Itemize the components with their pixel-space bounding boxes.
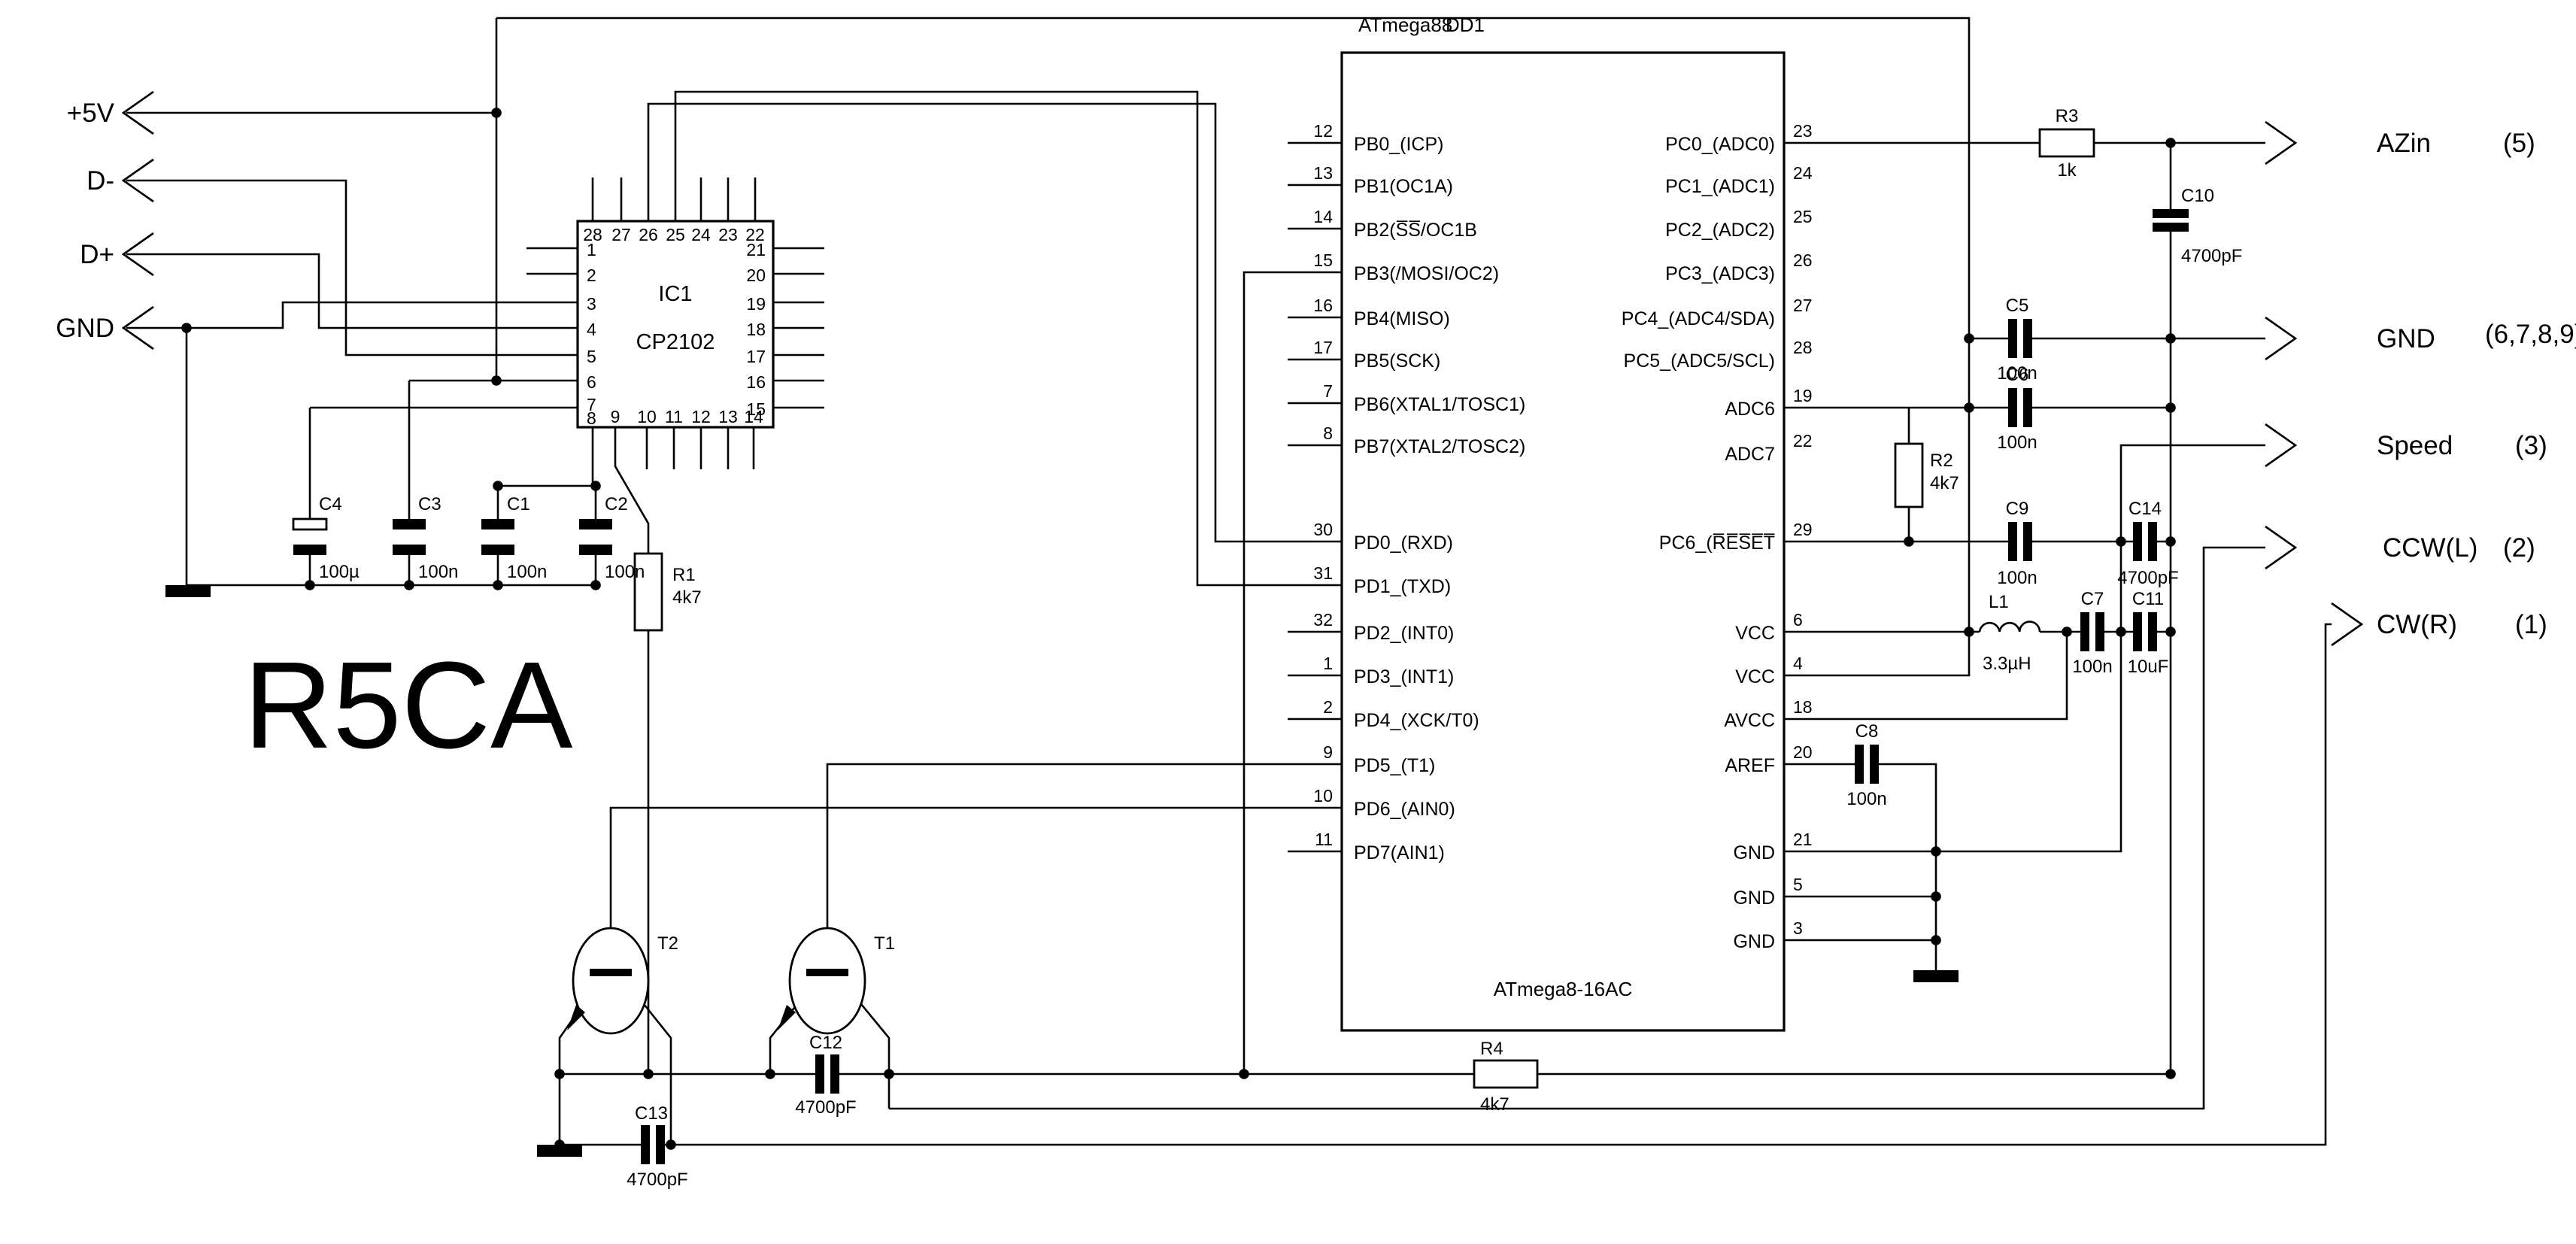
svg-text:12: 12 bbox=[1313, 121, 1333, 141]
mcu-right-pin-numbers: 23 24 25 26 27 28 19 22 29 6 4 18 20 21 … bbox=[1793, 121, 1813, 938]
junction-dots bbox=[181, 108, 2176, 1150]
cap-c8-plate1 bbox=[1855, 745, 1864, 784]
svg-text:21: 21 bbox=[1793, 830, 1813, 849]
inductor-l1 bbox=[1980, 622, 2040, 632]
svg-text:C8: C8 bbox=[1855, 721, 1879, 742]
svg-text:23: 23 bbox=[1793, 121, 1813, 141]
svg-text:19: 19 bbox=[746, 294, 766, 314]
arrow-out-gnd bbox=[2265, 317, 2295, 360]
svg-text:PD6_(AIN0): PD6_(AIN0) bbox=[1354, 799, 1455, 820]
svg-text:22: 22 bbox=[1793, 431, 1813, 451]
svg-text:PC3_(ADC3): PC3_(ADC3) bbox=[1665, 263, 1775, 284]
svg-text:C13: C13 bbox=[635, 1103, 668, 1124]
transistor-t2 bbox=[567, 928, 648, 1033]
svg-text:PC5_(ADC5/SCL): PC5_(ADC5/SCL) bbox=[1624, 350, 1775, 372]
svg-text:2: 2 bbox=[587, 265, 596, 285]
svg-text:100n: 100n bbox=[507, 562, 547, 582]
svg-text:23: 23 bbox=[718, 225, 738, 244]
input-label-5v: +5V bbox=[67, 99, 115, 128]
cap-c7-plate1 bbox=[2080, 612, 2089, 651]
svg-text:10uF: 10uF bbox=[2128, 657, 2169, 677]
resistor-r3 bbox=[2040, 129, 2094, 156]
svg-text:4k7: 4k7 bbox=[1930, 473, 1959, 493]
svg-text:C4: C4 bbox=[319, 494, 342, 514]
output-label-azin: AZin bbox=[2377, 129, 2431, 158]
transistor-t1 bbox=[778, 928, 865, 1033]
mcu-left-stubs bbox=[1288, 143, 1342, 851]
wire-txd bbox=[675, 92, 1342, 585]
svg-text:31: 31 bbox=[1313, 563, 1333, 583]
cap-c14-plate1 bbox=[2133, 522, 2142, 561]
cap-c13-plate2 bbox=[656, 1125, 665, 1164]
cap-c3-plate2 bbox=[393, 545, 426, 555]
svg-text:24: 24 bbox=[1793, 163, 1813, 183]
svg-text:PC4_(ADC4/SDA): PC4_(ADC4/SDA) bbox=[1622, 308, 1775, 329]
svg-text:PB4(MISO): PB4(MISO) bbox=[1354, 308, 1450, 329]
svg-text:100n: 100n bbox=[605, 562, 645, 582]
svg-text:18: 18 bbox=[746, 320, 766, 339]
svg-text:4700pF: 4700pF bbox=[795, 1097, 856, 1118]
svg-text:20: 20 bbox=[746, 265, 766, 285]
svg-text:PD4_(XCK/T0): PD4_(XCK/T0) bbox=[1354, 710, 1479, 731]
svg-text:PC2_(ADC2): PC2_(ADC2) bbox=[1665, 220, 1775, 241]
svg-text:100n: 100n bbox=[1997, 568, 2037, 588]
output-pins-speed: (3) bbox=[2515, 431, 2547, 460]
svg-text:29: 29 bbox=[1793, 520, 1813, 539]
svg-text:VCC: VCC bbox=[1735, 666, 1775, 687]
arrow-out-ccw bbox=[2265, 526, 2295, 569]
arrow-out-cw bbox=[2332, 603, 2362, 645]
output-pins-cw: (1) bbox=[2515, 610, 2547, 639]
svg-text:18: 18 bbox=[1793, 697, 1813, 717]
svg-text:13: 13 bbox=[1313, 163, 1333, 183]
input-label-dminus: D- bbox=[86, 166, 114, 196]
output-pins-ccw: (2) bbox=[2503, 533, 2535, 563]
svg-text:3.3µH: 3.3µH bbox=[1983, 654, 2031, 674]
svg-text:T1: T1 bbox=[874, 933, 895, 954]
svg-text:GND: GND bbox=[1733, 931, 1775, 952]
svg-text:GND: GND bbox=[1733, 842, 1775, 863]
svg-text:20: 20 bbox=[1793, 742, 1813, 762]
ground-symbol-left bbox=[165, 585, 211, 597]
mcu-left-pin-numbers: 12 13 14 15 16 17 7 8 30 31 32 1 2 9 10 … bbox=[1313, 121, 1333, 849]
output-pins-azin: (5) bbox=[2503, 129, 2535, 158]
arrow-out-speed bbox=[2265, 424, 2295, 466]
wire-cw bbox=[560, 624, 2332, 1145]
svg-text:12: 12 bbox=[691, 407, 711, 426]
ic1-body bbox=[578, 221, 773, 427]
schematic-canvas: R5CA +5V D- D+ GND AZin (5) GND (6,7,8,9… bbox=[0, 0, 2576, 1244]
svg-text:13: 13 bbox=[718, 407, 738, 426]
svg-text:1: 1 bbox=[587, 240, 596, 259]
svg-text:PB0_(ICP): PB0_(ICP) bbox=[1354, 134, 1443, 155]
svg-text:5: 5 bbox=[1793, 875, 1803, 894]
svg-text:ADC6: ADC6 bbox=[1725, 399, 1775, 420]
output-label-gnd: GND bbox=[2377, 324, 2435, 353]
svg-text:PD2_(INT0): PD2_(INT0) bbox=[1354, 623, 1454, 644]
page-title: R5CA bbox=[244, 636, 573, 774]
cap-c12-plate2 bbox=[830, 1054, 839, 1094]
svg-text:17: 17 bbox=[1313, 338, 1333, 357]
wire-c1c2-rail bbox=[498, 427, 596, 486]
ic1-right-stubs bbox=[773, 248, 824, 408]
cap-c10-plate2 bbox=[2153, 223, 2189, 232]
wire-pd5-t1 bbox=[827, 764, 1342, 930]
svg-text:100n: 100n bbox=[418, 562, 458, 582]
svg-text:26: 26 bbox=[1793, 250, 1813, 270]
svg-text:1k: 1k bbox=[2057, 160, 2077, 181]
svg-text:3: 3 bbox=[587, 294, 596, 314]
svg-text:AVCC: AVCC bbox=[1724, 710, 1775, 731]
cap-c6-plate1 bbox=[2008, 388, 2017, 427]
svg-text:PC1_(ADC1): PC1_(ADC1) bbox=[1665, 176, 1775, 197]
svg-text:14: 14 bbox=[1313, 207, 1333, 226]
svg-text:T2: T2 bbox=[657, 933, 678, 954]
cap-c12-plate1 bbox=[815, 1054, 824, 1094]
svg-text:C5: C5 bbox=[2006, 296, 2029, 316]
svg-text:3: 3 bbox=[1793, 918, 1803, 938]
svg-text:PC6_(R̅E̅S̅E̅T̅: PC6_(R̅E̅S̅E̅T̅ bbox=[1659, 532, 1776, 554]
svg-text:4: 4 bbox=[1793, 654, 1803, 673]
svg-text:PB3(/MOSI/OC2): PB3(/MOSI/OC2) bbox=[1354, 263, 1499, 284]
wire-dplus bbox=[126, 254, 578, 328]
svg-text:100n: 100n bbox=[1846, 789, 1886, 809]
mcu-ref: DD1 bbox=[1446, 14, 1485, 36]
svg-text:10: 10 bbox=[637, 407, 657, 426]
wire-gnd-pins bbox=[1784, 851, 1936, 940]
svg-text:10: 10 bbox=[1313, 786, 1333, 806]
svg-text:PD5_(T1): PD5_(T1) bbox=[1354, 755, 1435, 776]
svg-text:30: 30 bbox=[1313, 520, 1333, 539]
svg-text:32: 32 bbox=[1313, 610, 1333, 630]
cap-c2-plate2 bbox=[579, 545, 612, 555]
svg-text:C9: C9 bbox=[2006, 499, 2029, 519]
ic1-pin-numbers: 28 27 26 25 24 23 22 1 2 3 4 5 6 7 8 9 1… bbox=[583, 225, 766, 428]
svg-text:4700pF: 4700pF bbox=[2181, 246, 2242, 266]
svg-text:VCC: VCC bbox=[1735, 623, 1775, 644]
svg-text:6: 6 bbox=[1793, 610, 1803, 630]
wire-gnd-in bbox=[126, 302, 578, 328]
svg-text:27: 27 bbox=[611, 225, 631, 244]
svg-text:8: 8 bbox=[587, 408, 596, 428]
svg-text:17: 17 bbox=[746, 347, 766, 366]
svg-text:16: 16 bbox=[746, 372, 766, 392]
svg-text:R3: R3 bbox=[2056, 106, 2079, 126]
svg-text:PB6(XTAL1/TOSC1): PB6(XTAL1/TOSC1) bbox=[1354, 394, 1525, 415]
resistor-r2 bbox=[1895, 444, 1922, 507]
resistor-r4 bbox=[1474, 1060, 1537, 1088]
svg-text:2: 2 bbox=[1323, 697, 1333, 717]
svg-text:C7: C7 bbox=[2081, 589, 2104, 609]
svg-text:26: 26 bbox=[639, 225, 658, 244]
input-label-dplus: D+ bbox=[80, 240, 114, 269]
cap-c3-plate1 bbox=[393, 519, 426, 529]
mcu-bottom-name: ATmega8-16AC bbox=[1494, 978, 1633, 1000]
svg-text:7: 7 bbox=[1323, 381, 1333, 401]
svg-text:19: 19 bbox=[1793, 386, 1813, 405]
cap-c4-plate bbox=[293, 545, 326, 555]
svg-text:100n: 100n bbox=[1997, 432, 2037, 453]
svg-text:9: 9 bbox=[1323, 742, 1333, 762]
ic1-part: CP2102 bbox=[636, 330, 715, 354]
svg-text:PD7(AIN1): PD7(AIN1) bbox=[1354, 842, 1445, 863]
svg-text:6: 6 bbox=[587, 372, 596, 392]
cap-c10-plate1 bbox=[2153, 209, 2189, 218]
cap-c6-plate2 bbox=[2023, 388, 2032, 427]
arrow-out-azin bbox=[2265, 122, 2295, 164]
svg-text:AREF: AREF bbox=[1725, 755, 1775, 776]
svg-text:5: 5 bbox=[587, 347, 596, 366]
svg-text:100µ: 100µ bbox=[319, 562, 360, 582]
svg-text:R2: R2 bbox=[1930, 451, 1953, 471]
svg-text:4: 4 bbox=[587, 320, 596, 339]
svg-text:C11: C11 bbox=[2132, 589, 2164, 609]
svg-text:PC0_(ADC0): PC0_(ADC0) bbox=[1665, 134, 1775, 155]
svg-text:15: 15 bbox=[1313, 250, 1333, 270]
svg-text:PB7(XTAL2/TOSC2): PB7(XTAL2/TOSC2) bbox=[1354, 436, 1525, 457]
cap-c11-plate2 bbox=[2148, 612, 2157, 651]
cap-c1-plate2 bbox=[481, 545, 514, 555]
ic1-ref: IC1 bbox=[658, 282, 692, 306]
svg-text:PD3_(INT1): PD3_(INT1) bbox=[1354, 666, 1454, 687]
svg-text:PD0_(RXD): PD0_(RXD) bbox=[1354, 532, 1453, 554]
output-pins-gnd: (6,7,8,9) bbox=[2485, 320, 2576, 349]
svg-text:PD1_(TXD): PD1_(TXD) bbox=[1354, 576, 1451, 597]
svg-text:C14: C14 bbox=[2128, 499, 2162, 519]
cap-c5-plate1 bbox=[2008, 319, 2017, 358]
cap-c8-plate2 bbox=[1870, 745, 1879, 784]
svg-text:4700pF: 4700pF bbox=[627, 1170, 687, 1190]
wire-pd6-t2 bbox=[611, 808, 1342, 930]
svg-text:R4: R4 bbox=[1480, 1039, 1503, 1059]
wire-c4-leads bbox=[310, 408, 578, 585]
svg-text:15: 15 bbox=[746, 399, 766, 419]
svg-text:C1: C1 bbox=[507, 494, 530, 514]
ic1-left-stubs bbox=[526, 248, 578, 274]
ground-symbol-mcu bbox=[1913, 970, 1959, 982]
svg-text:GND: GND bbox=[1733, 887, 1775, 909]
svg-text:24: 24 bbox=[691, 225, 711, 244]
output-label-ccw: CCW(L) bbox=[2383, 533, 2477, 563]
svg-text:100n: 100n bbox=[2072, 657, 2112, 677]
cap-c14-plate2 bbox=[2148, 522, 2157, 561]
cap-c9-plate1 bbox=[2008, 522, 2017, 561]
output-label-cw: CW(R) bbox=[2377, 610, 2457, 639]
wire-vcc4 bbox=[1784, 632, 1969, 675]
svg-text:11: 11 bbox=[665, 407, 683, 426]
svg-text:27: 27 bbox=[1793, 296, 1813, 315]
svg-text:8: 8 bbox=[1323, 423, 1333, 443]
cap-c5-plate2 bbox=[2023, 319, 2032, 358]
wire-cap-gnd-rail bbox=[187, 328, 596, 585]
svg-text:PB5(SCK): PB5(SCK) bbox=[1354, 350, 1440, 372]
wire-5v-in bbox=[126, 18, 578, 381]
cap-c7-plate2 bbox=[2095, 612, 2104, 651]
svg-text:9: 9 bbox=[611, 407, 620, 426]
svg-text:C6: C6 bbox=[2006, 365, 2029, 385]
mcu-right-pin-labels: PC0_(ADC0) PC1_(ADC1) PC2_(ADC2) PC3_(AD… bbox=[1622, 134, 1776, 952]
svg-text:16: 16 bbox=[1313, 296, 1333, 315]
svg-text:PB2(S̅S̅/OC1B: PB2(S̅S̅/OC1B bbox=[1354, 220, 1477, 241]
svg-text:R1: R1 bbox=[672, 565, 696, 585]
svg-text:4k7: 4k7 bbox=[672, 587, 702, 608]
svg-text:4700pF: 4700pF bbox=[2117, 568, 2178, 588]
svg-text:ADC7: ADC7 bbox=[1725, 444, 1775, 465]
cap-c2-plate1 bbox=[579, 519, 612, 529]
svg-text:28: 28 bbox=[1793, 338, 1813, 357]
cap-c11-plate1 bbox=[2133, 612, 2142, 651]
svg-text:C2: C2 bbox=[605, 494, 628, 514]
svg-text:C3: C3 bbox=[418, 494, 441, 514]
svg-text:25: 25 bbox=[666, 225, 685, 244]
svg-text:25: 25 bbox=[1793, 207, 1813, 226]
cap-c13-plate1 bbox=[641, 1125, 650, 1164]
components bbox=[165, 53, 2189, 1164]
cap-c4-plus-plate bbox=[293, 519, 326, 529]
input-label-gnd: GND bbox=[56, 314, 114, 343]
mcu-left-pin-labels: PB0_(ICP) PB1(OC1A) PB2(S̅S̅/OC1B PB3(/M… bbox=[1354, 134, 1525, 863]
svg-text:4k7: 4k7 bbox=[1480, 1094, 1509, 1115]
ic1-bottom-stubs bbox=[647, 427, 754, 469]
mcu-part-name: ATmega88 bbox=[1358, 14, 1452, 36]
cap-c9-plate2 bbox=[2023, 522, 2032, 561]
svg-text:L1: L1 bbox=[1989, 592, 2009, 612]
svg-text:11: 11 bbox=[1315, 830, 1333, 849]
ic1-top-stubs bbox=[593, 177, 755, 221]
svg-text:1: 1 bbox=[1323, 654, 1333, 673]
svg-text:PB1(OC1A): PB1(OC1A) bbox=[1354, 176, 1453, 197]
svg-text:21: 21 bbox=[746, 240, 766, 259]
cap-c1-plate1 bbox=[481, 519, 514, 529]
svg-text:C12: C12 bbox=[809, 1033, 842, 1053]
svg-text:C10: C10 bbox=[2181, 186, 2214, 206]
output-label-speed: Speed bbox=[2377, 431, 2453, 460]
